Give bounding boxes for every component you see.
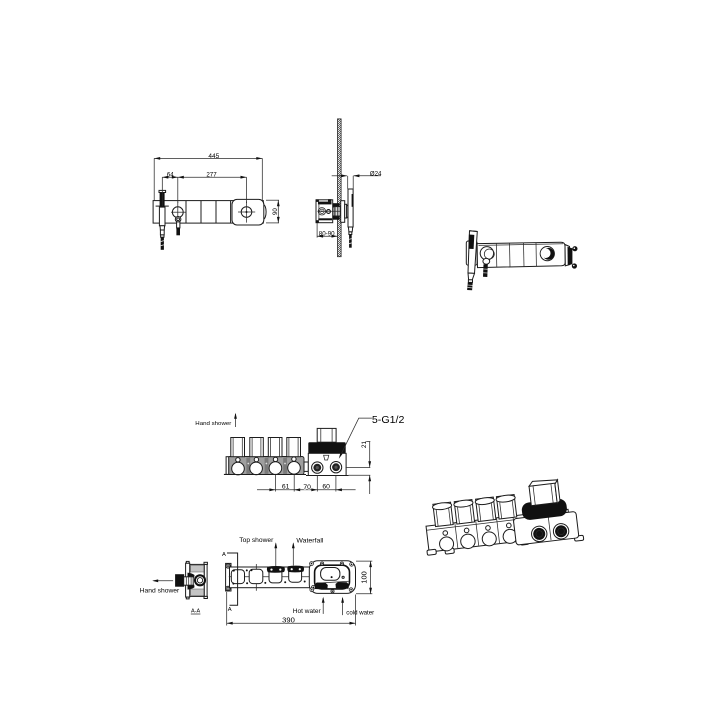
svg-text:277: 277 xyxy=(206,171,217,178)
svg-text:445: 445 xyxy=(208,153,219,160)
svg-text:64: 64 xyxy=(167,171,174,178)
svg-text:61: 61 xyxy=(282,483,290,490)
svg-text:100: 100 xyxy=(360,571,369,583)
svg-text:5-G1/2: 5-G1/2 xyxy=(372,414,405,426)
svg-text:70: 70 xyxy=(303,484,311,491)
svg-text:A: A xyxy=(228,607,232,613)
svg-text:390: 390 xyxy=(282,616,295,625)
svg-text:Hand shower: Hand shower xyxy=(195,421,231,427)
svg-text:90: 90 xyxy=(272,208,279,215)
svg-text:Waterfall: Waterfall xyxy=(296,538,323,544)
svg-text:Hot water: Hot water xyxy=(293,608,321,615)
svg-text:Ø24: Ø24 xyxy=(370,170,382,177)
svg-text:cold water: cold water xyxy=(346,609,374,616)
svg-text:21: 21 xyxy=(361,441,368,448)
svg-text:Hand shower: Hand shower xyxy=(140,589,180,595)
svg-text:Top shower: Top shower xyxy=(239,538,273,544)
svg-text:80-90: 80-90 xyxy=(319,230,335,237)
svg-text:A: A xyxy=(222,552,226,558)
svg-text:60: 60 xyxy=(322,483,330,490)
